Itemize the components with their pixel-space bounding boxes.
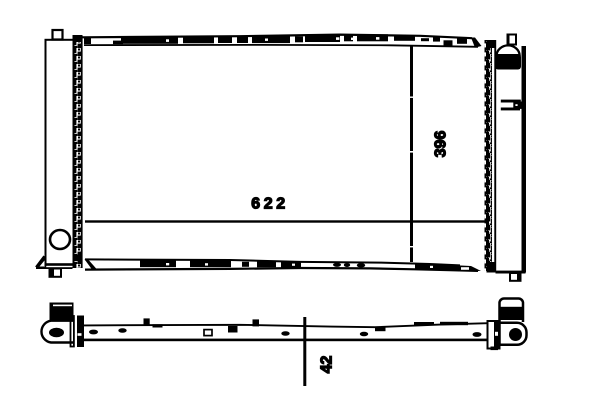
svg-text:396: 396 (433, 131, 450, 158)
svg-text:42: 42 (319, 356, 336, 374)
svg-text:622: 622 (251, 196, 289, 213)
